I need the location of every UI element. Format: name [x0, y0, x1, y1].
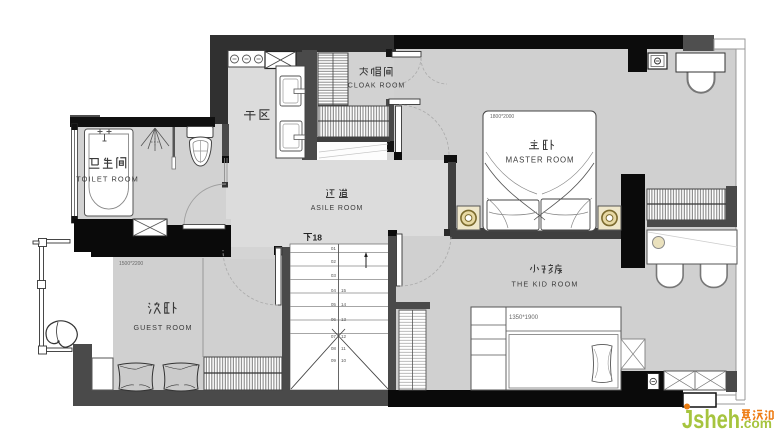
- svg-text:GUEST ROOM: GUEST ROOM: [134, 323, 193, 332]
- svg-text:TOILET ROOM: TOILET ROOM: [76, 175, 139, 184]
- svg-text:13: 13: [341, 317, 347, 322]
- svg-text:08: 08: [331, 346, 337, 351]
- svg-text:Jsheh: Jsheh: [682, 404, 740, 432]
- svg-text:02: 02: [331, 259, 337, 264]
- svg-text:CLOAK ROOM: CLOAK ROOM: [348, 83, 405, 90]
- svg-text:THE KID ROOM: THE KID ROOM: [511, 280, 578, 289]
- svg-text:1800*2000: 1800*2000: [490, 114, 514, 120]
- svg-text:14: 14: [341, 302, 347, 307]
- svg-text:ASILE ROOM: ASILE ROOM: [311, 205, 364, 212]
- svg-text:03: 03: [331, 273, 337, 278]
- svg-text:15: 15: [341, 288, 347, 293]
- svg-text:05: 05: [331, 302, 337, 307]
- svg-text:1350*1900: 1350*1900: [509, 315, 539, 321]
- svg-text:09: 09: [331, 358, 337, 363]
- svg-text:01: 01: [331, 246, 337, 251]
- svg-text:18: 18: [313, 233, 323, 243]
- svg-text:07: 07: [331, 334, 337, 339]
- svg-text:12: 12: [341, 334, 347, 339]
- svg-text:10: 10: [341, 358, 347, 363]
- svg-text:04: 04: [331, 288, 337, 293]
- svg-text:MASTER ROOM: MASTER ROOM: [506, 156, 575, 165]
- svg-text:06: 06: [331, 317, 337, 322]
- svg-text:11: 11: [341, 346, 346, 351]
- svg-text:1500*2200: 1500*2200: [119, 261, 143, 267]
